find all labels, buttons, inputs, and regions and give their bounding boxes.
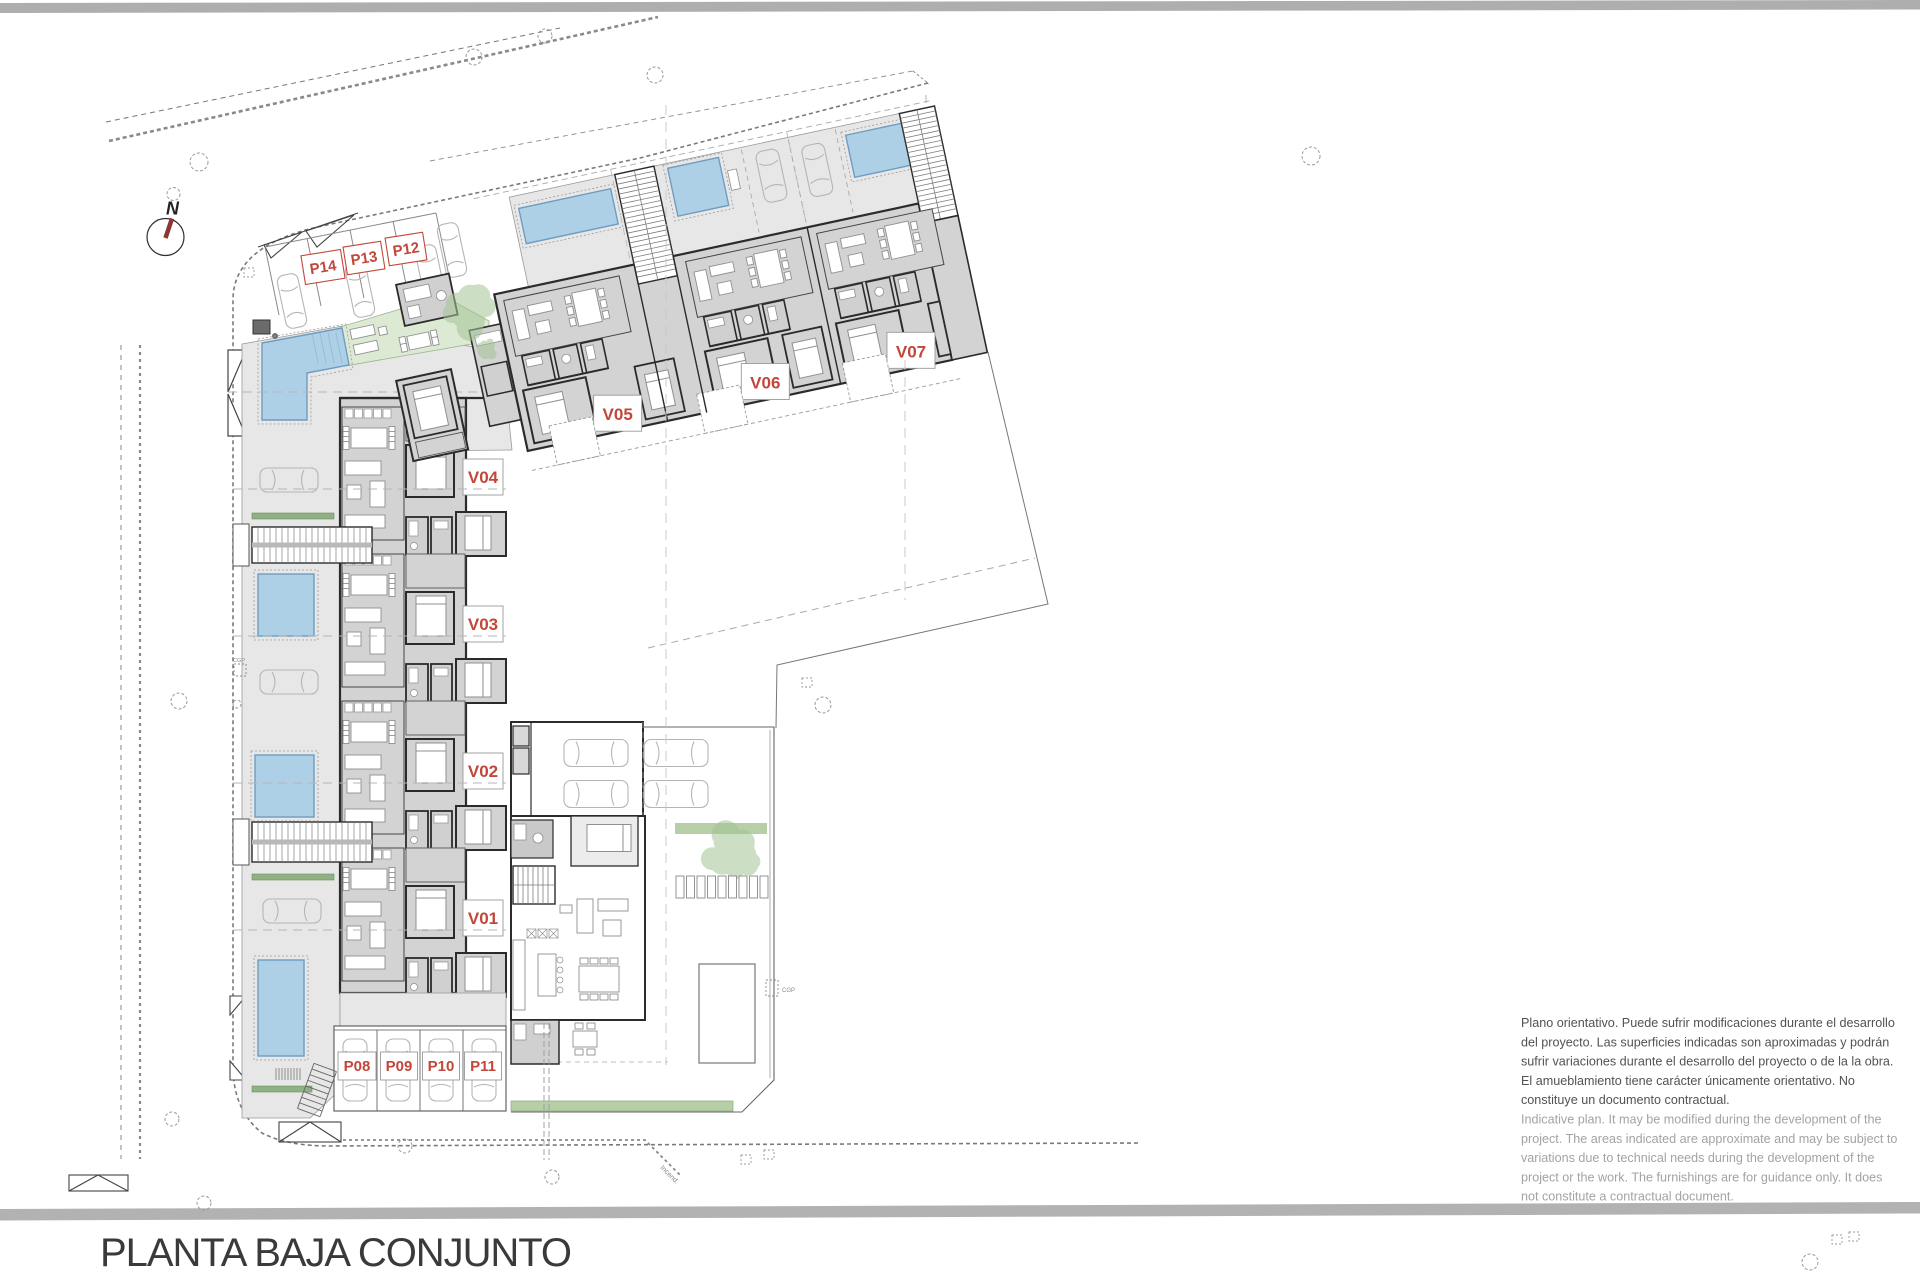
svg-text:Indicative plan. It may be mod: Indicative plan. It may be modified duri… (1521, 1113, 1882, 1127)
svg-text:P09: P09 (386, 1058, 413, 1075)
svg-text:P11: P11 (470, 1058, 496, 1075)
svg-text:not constitute a contractual d: not constitute a contractual document. (1521, 1190, 1734, 1204)
svg-text:sufrir variaciones durante el: sufrir variaciones durante el desarrollo… (1521, 1055, 1893, 1069)
svg-text:V03: V03 (468, 615, 498, 634)
svg-text:del proyecto. Las superficies: del proyecto. Las superficies indicadas … (1521, 1035, 1889, 1049)
svg-text:Plano orientativo. Puede sufri: Plano orientativo. Puede sufrir modifica… (1521, 1016, 1895, 1030)
svg-text:PLANTA BAJA CONJUNTO: PLANTA BAJA CONJUNTO (100, 1231, 571, 1275)
svg-text:V07: V07 (896, 342, 926, 361)
svg-text:project or the work. The furni: project or the work. The furnishings are… (1521, 1170, 1882, 1184)
svg-text:constituye un documento contra: constituye un documento contractual. (1521, 1093, 1730, 1107)
svg-text:V01: V01 (468, 909, 498, 928)
svg-text:variations due to technical ne: variations due to technical needs during… (1521, 1151, 1875, 1165)
svg-text:V05: V05 (603, 405, 633, 424)
svg-text:P08: P08 (344, 1058, 371, 1075)
svg-text:N: N (166, 199, 180, 219)
svg-text:CGP: CGP (782, 988, 795, 994)
svg-text:CGP: CGP (233, 658, 245, 664)
svg-text:P10: P10 (428, 1058, 455, 1075)
svg-text:Incend.: Incend. (659, 1164, 680, 1185)
svg-text:project. The areas indicated a: project. The areas indicated are approxi… (1521, 1132, 1897, 1146)
svg-text:V06: V06 (750, 374, 780, 393)
svg-text:V02: V02 (468, 762, 498, 781)
svg-text:V04: V04 (468, 468, 499, 487)
svg-text:El amueblamiento tiene carácte: El amueblamiento tiene carácter únicamen… (1521, 1074, 1855, 1088)
